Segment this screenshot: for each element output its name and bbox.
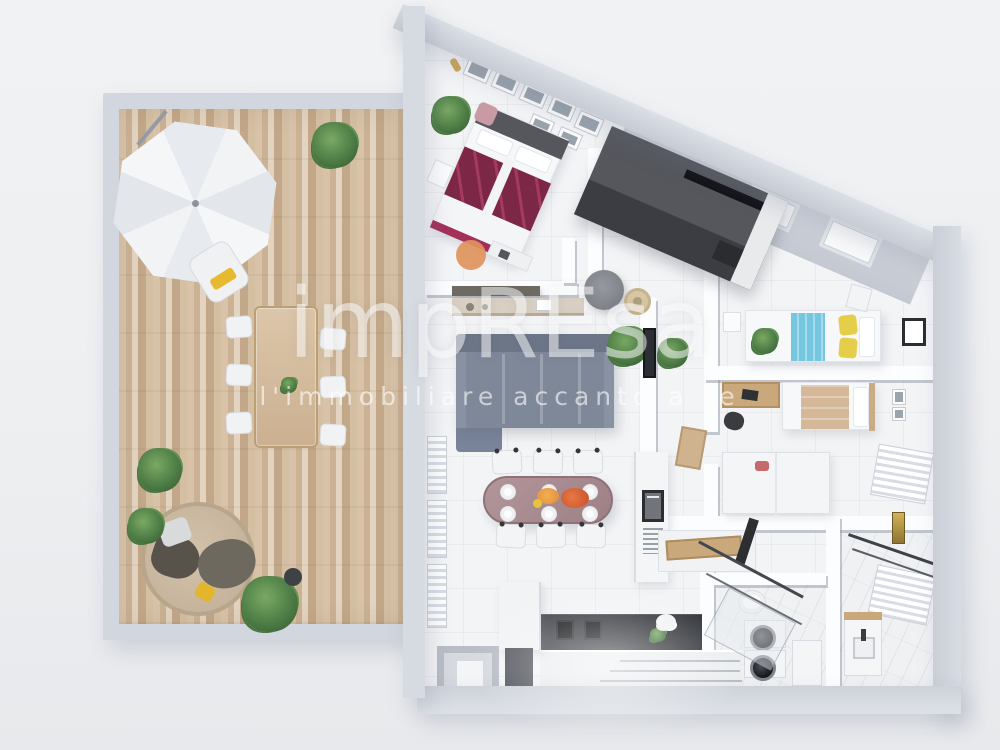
outer-wall-bottom — [417, 686, 961, 714]
console-decor — [482, 304, 488, 310]
sofa-seat-seam — [540, 354, 543, 424]
lounge-chair-cushion — [209, 267, 237, 291]
counter-step-edge — [610, 670, 740, 672]
vanity-wood-top — [844, 612, 882, 620]
cooktop — [556, 620, 574, 640]
oven-handle — [647, 496, 659, 498]
table-centerpiece-plant — [281, 377, 297, 393]
wall-hall-jog — [562, 238, 575, 283]
straw-hat — [624, 288, 651, 315]
kitchen-flower-greens — [650, 628, 666, 642]
built-in-oven — [642, 490, 664, 522]
outdoor-chair — [319, 375, 346, 398]
guest-nightstand — [723, 312, 741, 332]
laundry-cabinet — [792, 640, 822, 686]
dining-chair — [573, 449, 604, 474]
study-desk — [722, 382, 780, 408]
wall-corridor-east-lower — [704, 464, 718, 520]
studio-pillow — [853, 387, 869, 427]
terrace-plant-small — [128, 508, 164, 544]
outer-wall-left — [403, 6, 425, 698]
planter-pot — [284, 568, 302, 586]
cabinet-seam — [775, 453, 777, 515]
sofa-armrest — [604, 352, 614, 428]
living-room-plant — [608, 326, 648, 366]
flower-bouquet-red — [561, 488, 589, 508]
tan-blanket — [801, 385, 849, 429]
white-pillow — [859, 317, 875, 357]
yellow-pillow — [838, 314, 858, 336]
dinner-plate — [500, 484, 516, 500]
dining-chair — [495, 523, 526, 549]
wall-living-divider — [640, 298, 656, 458]
yellow-pillow — [838, 337, 858, 358]
counter-step-edge — [620, 660, 740, 662]
outdoor-chair — [225, 363, 252, 386]
wall-mirror — [643, 328, 656, 378]
console-table — [452, 298, 584, 316]
kitchen-sink — [584, 620, 602, 640]
outdoor-chair — [225, 411, 252, 434]
laptop — [741, 389, 758, 401]
counter-step-edge — [600, 680, 742, 682]
guest-wall-art — [902, 318, 926, 346]
bathroom-vanity — [844, 618, 882, 676]
bedroom-plant — [432, 96, 470, 134]
corridor-plant — [658, 338, 688, 368]
studio-radiator — [870, 444, 934, 505]
terrace-plant-left — [138, 448, 182, 492]
studio-wall-art — [893, 408, 905, 420]
studio-bed — [782, 382, 874, 430]
wall-radiator — [427, 436, 447, 494]
dinner-plate — [582, 506, 598, 522]
floorplan-render: impREsa l'immobiliare accanto a te — [0, 0, 1000, 750]
outdoor-chair — [319, 423, 346, 446]
brass-sconce — [892, 512, 905, 544]
dining-chair — [576, 523, 607, 548]
sofa — [456, 334, 614, 428]
sink-faucet — [861, 629, 866, 641]
console-decor — [466, 303, 474, 311]
wall-corridor-east-upper — [704, 250, 718, 432]
outdoor-chair — [225, 315, 252, 339]
wall-radiator — [427, 500, 447, 558]
sofa-seat-seam — [578, 354, 581, 424]
dinner-plate — [500, 506, 516, 522]
art-card — [536, 299, 552, 311]
parasol-hub — [192, 200, 199, 207]
dining-table — [483, 476, 613, 524]
sofa-armrest — [456, 352, 466, 428]
studio-white-cabinet — [722, 452, 830, 514]
hat-crown — [633, 297, 642, 306]
dining-chair — [536, 523, 567, 548]
dinner-plate — [541, 506, 557, 522]
outer-wall-right — [933, 226, 961, 712]
gray-pouf — [584, 270, 624, 310]
wood-headboard — [869, 383, 875, 431]
kitchen-dark-counter — [540, 614, 702, 650]
guest-room-plant — [752, 328, 778, 354]
kitchen-peninsula — [499, 582, 541, 650]
kitchen-flowers-white — [656, 614, 676, 630]
hallway-shelf — [452, 286, 540, 296]
sofa-seat-seam — [502, 354, 505, 424]
peninsula-dark-base — [505, 648, 533, 690]
round-orange-rug — [456, 240, 486, 270]
studio-wall-art — [893, 390, 905, 404]
bench-book — [498, 249, 510, 260]
red-accent-item — [755, 461, 769, 471]
wall-laundry-east — [826, 516, 840, 692]
outdoor-chair — [319, 327, 346, 351]
dining-chair — [533, 449, 564, 474]
flower-bouquet-yellow — [533, 499, 542, 508]
blue-blanket — [791, 313, 825, 361]
sofa-backrest — [456, 334, 614, 352]
dining-chair — [491, 449, 522, 475]
wall-bedroom2-studio — [704, 366, 936, 380]
wall-radiator — [427, 564, 447, 628]
terrace-plant-top — [312, 122, 358, 168]
